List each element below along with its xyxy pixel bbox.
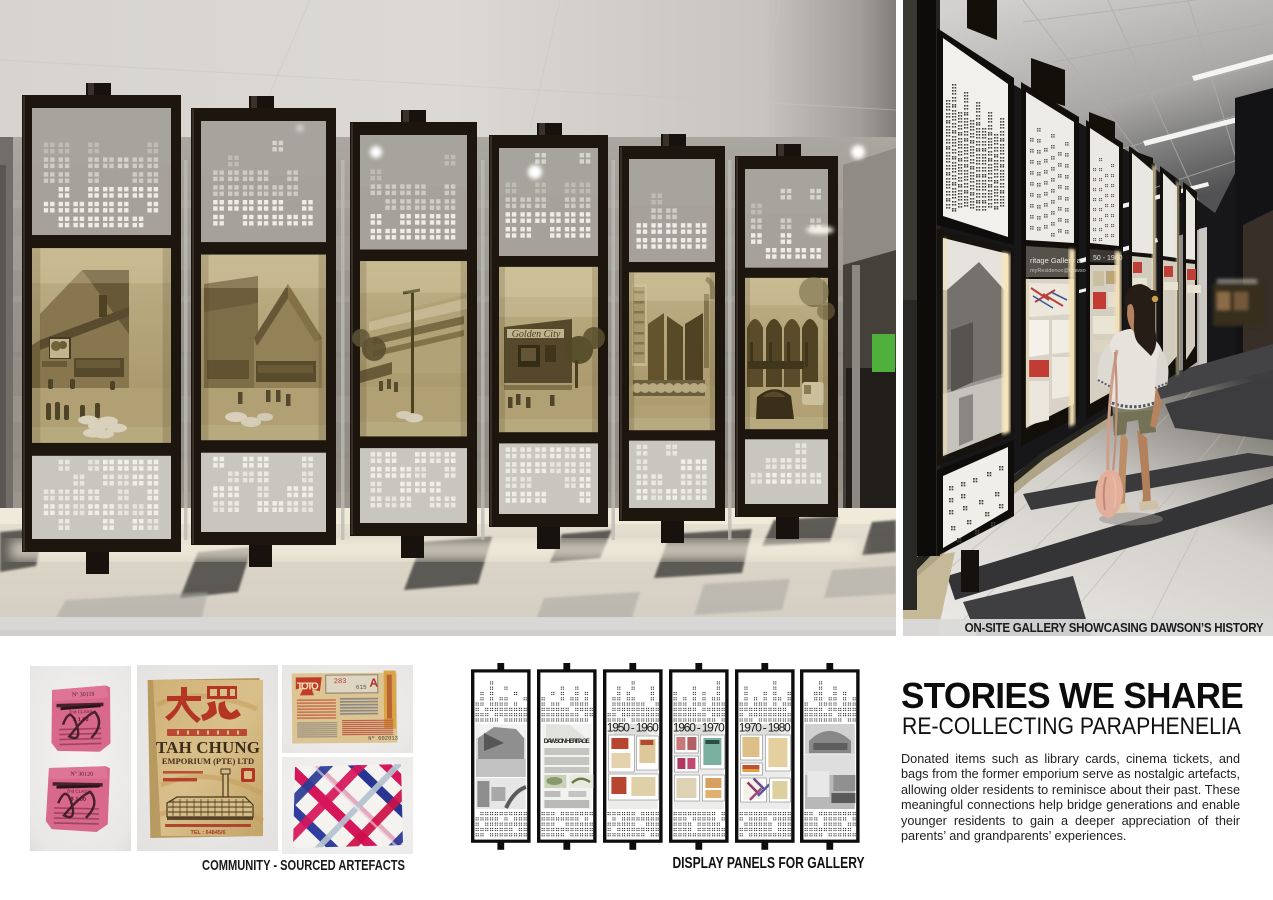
svg-text:EMPORIUM (PTE) LTD: EMPORIUM (PTE) LTD	[162, 756, 254, 766]
svg-text:Nº 30120: Nº 30120	[70, 771, 93, 777]
svg-text:615: 615	[356, 684, 367, 691]
svg-text:2nd CLASS: 2nd CLASS	[69, 709, 93, 715]
svg-text:DAWSON HERITAGE: DAWSON HERITAGE	[544, 738, 590, 745]
svg-text:TEL : 64845/6: TEL : 64845/6	[190, 830, 225, 836]
svg-text:1960 - 1970: 1960 - 1970	[673, 721, 725, 735]
svg-text:Nº 30119: Nº 30119	[72, 692, 95, 699]
svg-text:TOTO: TOTO	[297, 681, 319, 692]
svg-text:ON-SITE GALLERY SHOWCASING DAW: ON-SITE GALLERY SHOWCASING DAWSON’S HIST…	[965, 620, 1265, 635]
svg-text:A: A	[369, 676, 378, 690]
svg-text:Nº 602013: Nº 602013	[368, 735, 398, 742]
svg-text:TAH CHUNG: TAH CHUNG	[156, 738, 260, 757]
svg-text:1970 - 1980: 1970 - 1980	[739, 721, 791, 735]
svg-text:myResidence@Dawson: myResidence@Dawson	[1030, 268, 1089, 274]
svg-text:283: 283	[334, 678, 347, 686]
svg-text:1950 - 1960: 1950 - 1960	[607, 721, 659, 735]
